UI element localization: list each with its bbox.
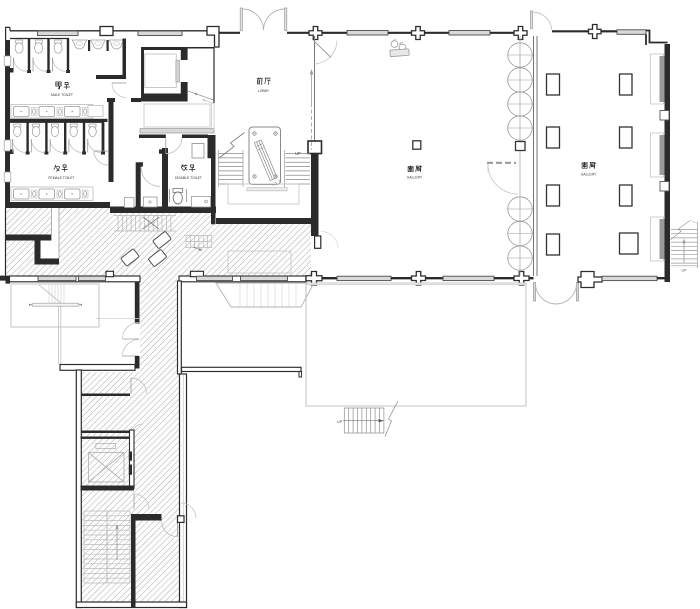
svg-text:UP: UP bbox=[682, 269, 688, 273]
svg-text:MALE TOILET: MALE TOILET bbox=[51, 93, 73, 97]
svg-text:GALLERY: GALLERY bbox=[407, 176, 423, 180]
svg-text:UP: UP bbox=[337, 419, 343, 424]
svg-text:LOBBY: LOBBY bbox=[258, 89, 270, 93]
svg-text:FEMALE TOILET: FEMALE TOILET bbox=[48, 176, 74, 180]
svg-text:GALLERY: GALLERY bbox=[581, 173, 597, 177]
svg-text:DISABLE TOILET: DISABLE TOILET bbox=[175, 176, 202, 180]
svg-text:UP: UP bbox=[295, 151, 301, 156]
